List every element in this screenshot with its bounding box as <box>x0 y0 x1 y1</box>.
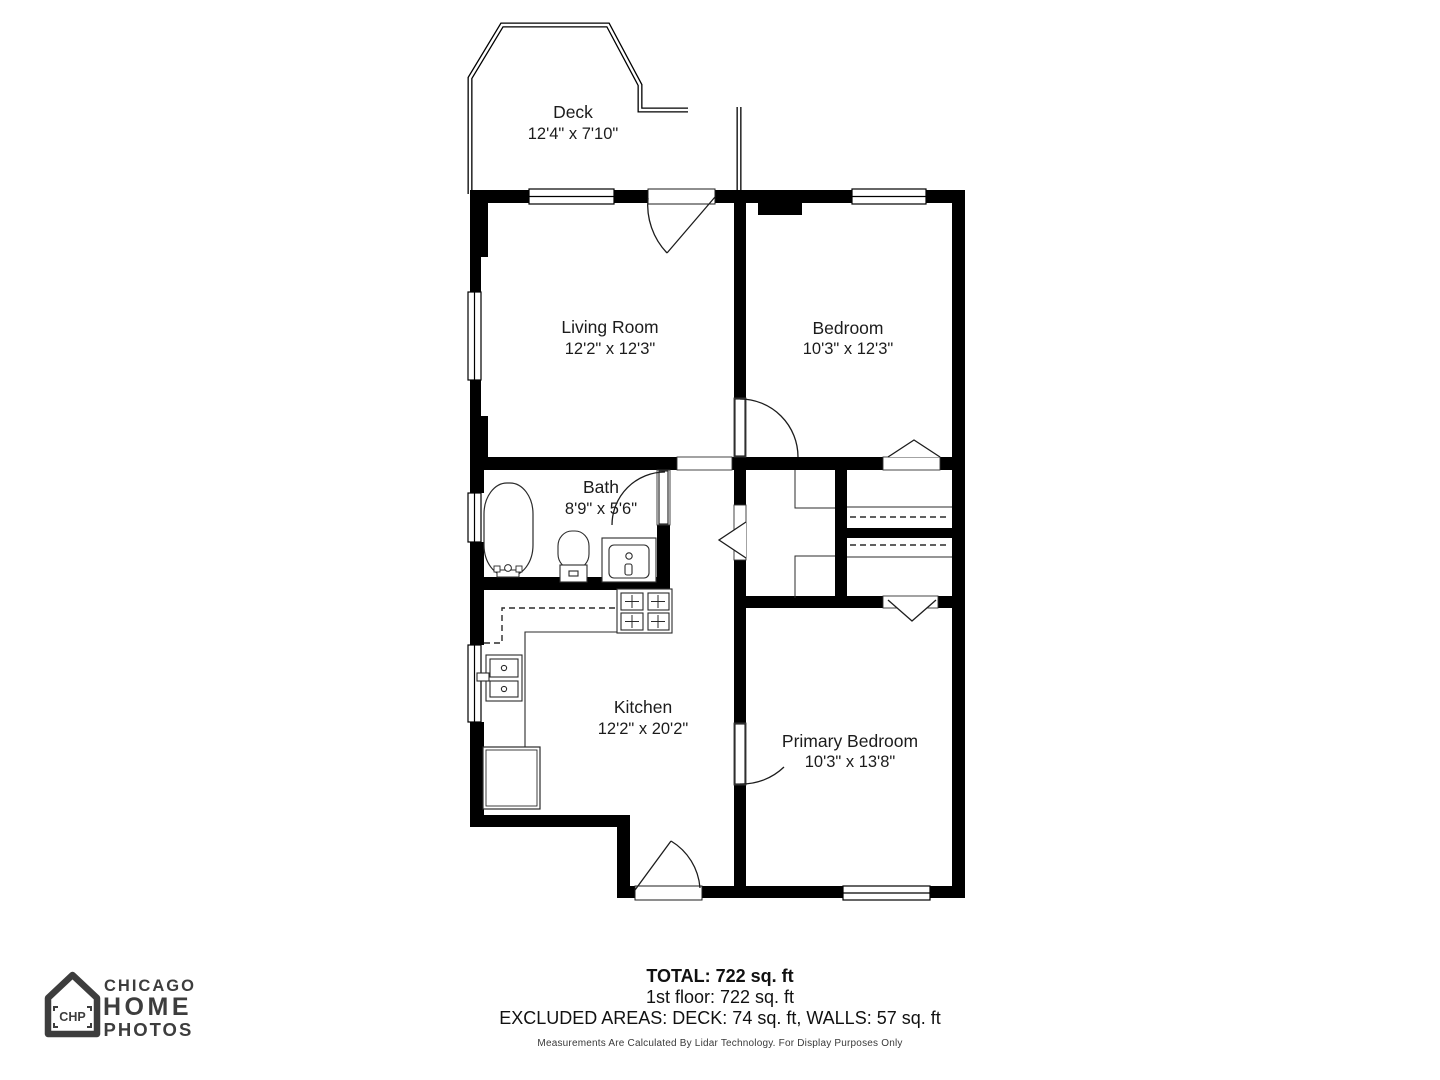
room-label-bedroom: Bedroom <box>812 318 883 338</box>
room-label-living-room: Living Room <box>561 317 658 337</box>
room-label-bath: Bath <box>583 477 619 497</box>
primary-closet-bifold <box>888 600 936 621</box>
window-primary-bottom <box>843 886 930 900</box>
room-dims-kitchen: 12'2" x 20'2" <box>598 720 689 738</box>
kitchen-sink <box>477 655 522 701</box>
toilet <box>558 531 589 582</box>
hall-closet-bifold <box>719 522 746 558</box>
room-label-kitchen: Kitchen <box>614 697 672 717</box>
bedroom-closet-bifold <box>888 440 940 457</box>
room-label-primary-bedroom: Primary Bedroom <box>782 731 918 751</box>
window-living-room-left <box>468 292 481 380</box>
logo-monogram: CHP <box>59 1010 85 1024</box>
floorplan-page: Deck 12'4" x 7'10" Living Room 12'2" x 1… <box>0 0 1440 1080</box>
wall-left <box>470 257 481 292</box>
wall-left <box>470 190 488 257</box>
wall-bottom <box>630 886 635 898</box>
wall-left <box>470 722 484 827</box>
logo-graphic: CHP CHICAGO HOME PHOTOS <box>42 970 252 1044</box>
room-label-deck: Deck <box>553 102 593 122</box>
wall-bottom-left <box>470 815 617 827</box>
wall-bottom <box>702 886 843 898</box>
wall-livingroom-bedroom <box>734 190 746 398</box>
wall-kitchen-primary <box>734 785 746 887</box>
wall-mid-horizontal <box>484 457 677 470</box>
room-dims-deck: 12'4" x 7'10" <box>528 125 619 143</box>
walls <box>470 190 965 898</box>
hall-closet-shelf <box>795 470 835 508</box>
wall-closet-divider <box>835 528 952 538</box>
logo-text-home: HOME <box>103 993 192 1021</box>
primary-bedroom-door <box>734 723 784 785</box>
bathtub <box>484 483 533 577</box>
wall-hall-closet <box>734 470 746 505</box>
wall-mid-horizontal <box>732 457 883 470</box>
wall-bath-right <box>657 525 670 577</box>
counter-dashed-line <box>484 608 617 643</box>
logo-text-photos: PHOTOS <box>104 1019 194 1040</box>
bath-vanity-sink <box>602 538 656 582</box>
wall-left <box>470 542 484 645</box>
bath-fixtures <box>484 483 656 582</box>
wall-kitchen-primary <box>734 560 746 723</box>
room-dims-bedroom: 10'3" x 12'3" <box>803 340 894 358</box>
deck-outline <box>470 25 739 194</box>
room-dims-bath: 8'9" x 5'6" <box>565 500 637 518</box>
logo-wordmark: CHICAGO HOME PHOTOS <box>103 977 196 1040</box>
wall-chimney-notch <box>758 203 802 215</box>
wall-top <box>614 190 648 203</box>
window-kitchen-left <box>468 645 481 722</box>
wall-closet-bottom <box>938 596 952 608</box>
opening-bedroom-closet <box>883 457 940 470</box>
floorplan-drawing: Deck 12'4" x 7'10" Living Room 12'2" x 1… <box>0 0 1440 1080</box>
wall-left <box>470 380 481 416</box>
kitchen-door <box>635 841 702 900</box>
wall-step <box>617 815 630 898</box>
bedroom-door <box>734 398 798 457</box>
window-living-room-top <box>529 189 614 204</box>
opening-living-room-hall <box>677 457 732 470</box>
logo-house-icon: CHP <box>48 975 97 1034</box>
stove <box>617 589 672 633</box>
refrigerator <box>483 747 540 809</box>
entry-door <box>648 189 715 253</box>
room-dims-living-room: 12'2" x 12'3" <box>565 340 656 358</box>
wall-left <box>470 416 488 457</box>
wall-mid-horizontal <box>940 457 952 470</box>
hall-closet-shelf <box>795 556 835 598</box>
wall-closet-bottom <box>746 596 883 608</box>
window-bedroom-top <box>852 189 926 204</box>
window-bath-left <box>468 493 481 542</box>
wall-right <box>952 190 965 898</box>
chicago-home-photos-logo: CHP CHICAGO HOME PHOTOS <box>42 970 252 1049</box>
room-dims-primary-bedroom: 10'3" x 13'8" <box>805 753 896 771</box>
wall-left <box>470 457 484 493</box>
